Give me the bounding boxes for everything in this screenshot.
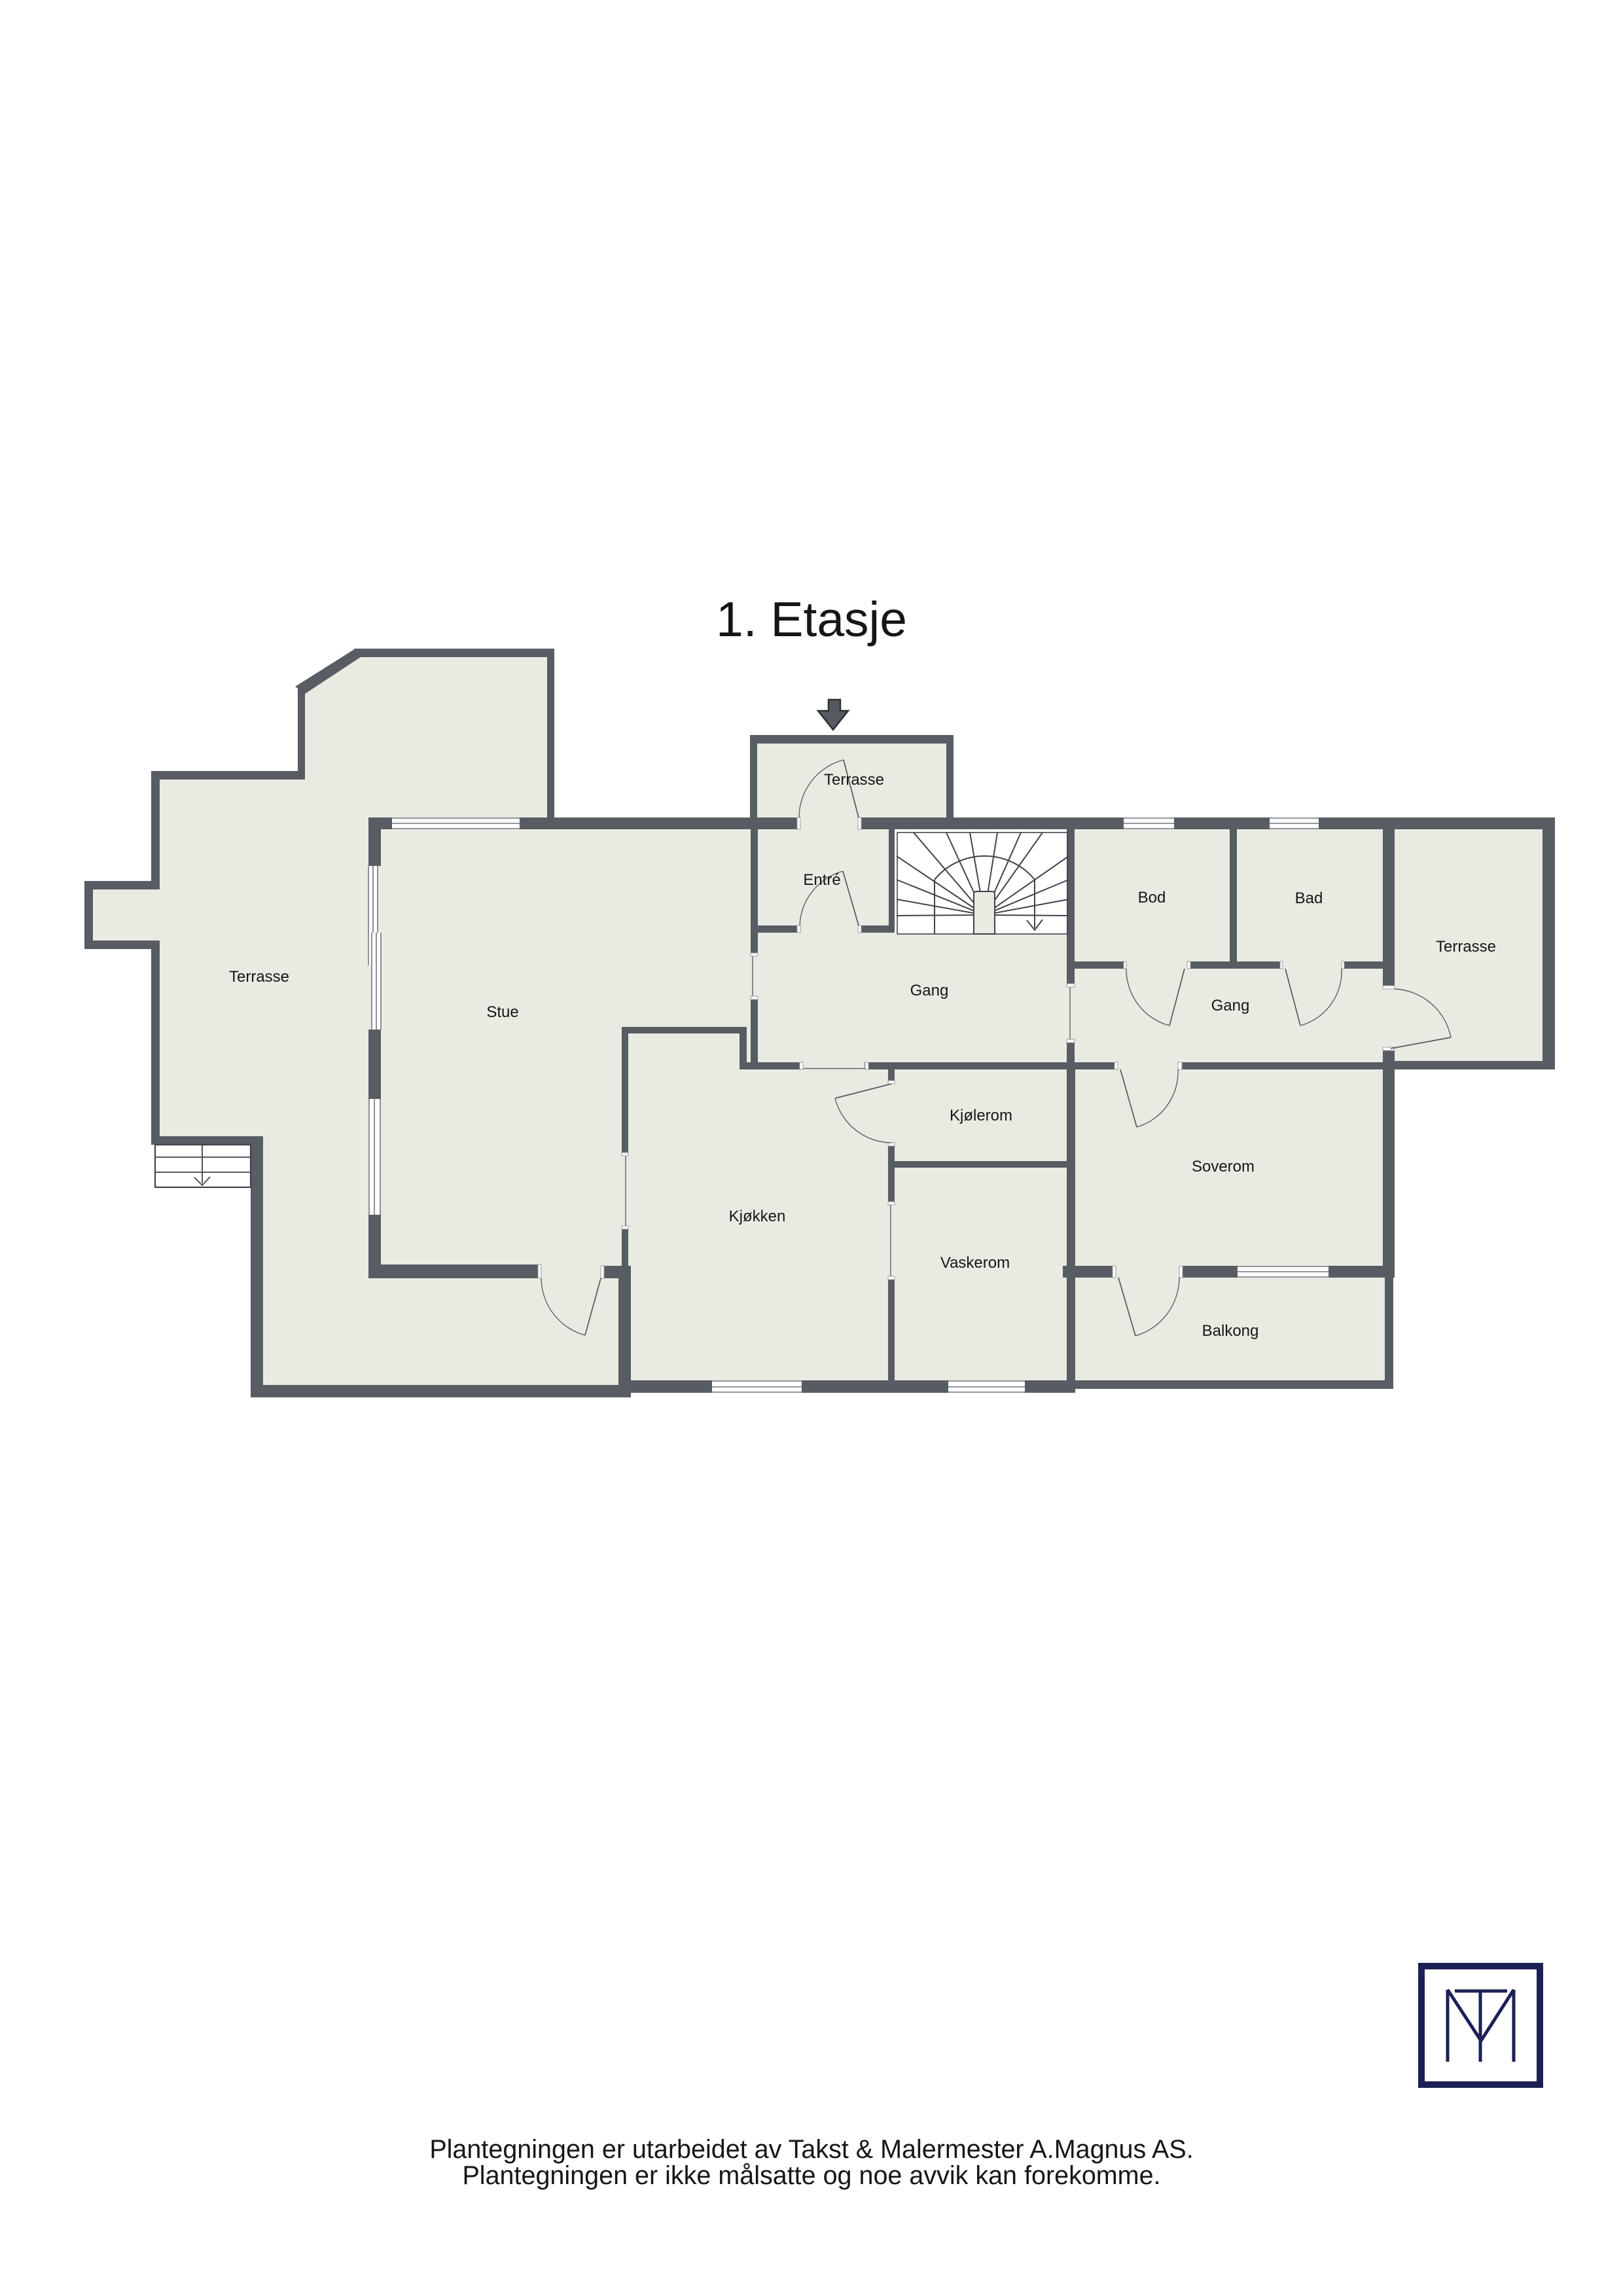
svg-text:Stue: Stue: [486, 1003, 518, 1021]
svg-text:Balkong: Balkong: [1202, 1322, 1259, 1340]
svg-text:Terrasse: Terrasse: [1436, 938, 1496, 956]
svg-text:Kjølerom: Kjølerom: [950, 1107, 1012, 1124]
svg-text:Bad: Bad: [1295, 889, 1323, 907]
svg-text:Vaskerom: Vaskerom: [940, 1254, 1010, 1272]
svg-text:Terrasse: Terrasse: [229, 968, 289, 986]
svg-text:Kjøkken: Kjøkken: [729, 1208, 786, 1225]
svg-text:1. Etasje: 1. Etasje: [716, 592, 907, 647]
svg-text:Entré: Entré: [803, 871, 840, 889]
svg-text:Bod: Bod: [1138, 889, 1166, 906]
svg-text:Soverom: Soverom: [1192, 1158, 1255, 1175]
svg-text:Plantegningen er ikke målsatte: Plantegningen er ikke målsatte og noe av…: [462, 2161, 1160, 2190]
svg-text:Gang: Gang: [1211, 997, 1250, 1014]
svg-text:Plantegningen er utarbeidet av: Plantegningen er utarbeidet av Takst & M…: [429, 2135, 1193, 2164]
svg-text:Gang: Gang: [910, 982, 949, 999]
svg-text:Terrasse: Terrasse: [824, 771, 884, 789]
